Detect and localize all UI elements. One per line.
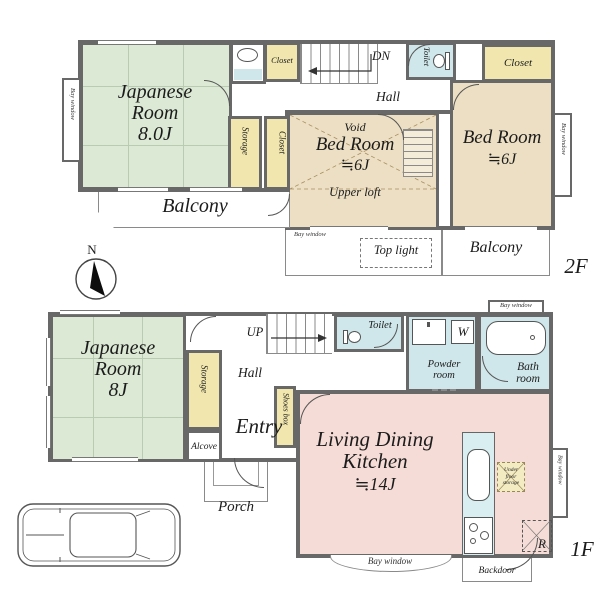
window [118, 187, 168, 192]
stairs-up-label: UP [240, 326, 270, 339]
bedroom-right-size: ≒6J [452, 152, 552, 169]
window [98, 40, 156, 45]
powder-room-1f: W Powder room [406, 314, 478, 392]
closet-top-right-2f: Closet [482, 44, 554, 82]
faucet-icon [427, 322, 430, 327]
toplight-terrace-2f: Bay window Top light [285, 230, 442, 276]
bath-room-1f: Bath room [478, 314, 552, 392]
bay-window-label: Bay window [559, 123, 566, 155]
burner-icon [470, 538, 476, 544]
under-floor-storage-label: Under floor storage [498, 467, 524, 487]
japanese-room-2f-label: Japanese Room 8.0J [95, 82, 215, 145]
hall-1f-label: Hall [228, 366, 272, 380]
floor1-label: 1F [562, 538, 600, 560]
bay-window-label: Bay window [288, 232, 332, 239]
entry-label: Entry [222, 415, 296, 437]
stairs-arrow-up-icon [267, 314, 333, 354]
backdoor-label: Backdoor [462, 567, 532, 577]
floor2-label: 2F [556, 255, 596, 277]
bay-window-right-1f: Bay window [551, 448, 568, 518]
closet-top-mid-2f: Closet [264, 42, 300, 82]
storage-2f: Storage [228, 116, 262, 190]
burner-icon [469, 523, 478, 532]
window [72, 457, 138, 462]
washbasin-floor [234, 69, 262, 80]
balcony-label: Balcony [448, 240, 544, 257]
bay-window-label: Bay window [490, 303, 542, 310]
drain-icon [530, 335, 535, 340]
bay-window-top-1f: Bay window [488, 300, 544, 314]
car-icon [14, 496, 186, 574]
window [46, 338, 51, 386]
bedroom-right-label: Bed Room [452, 128, 552, 148]
powder-door-dashed [432, 389, 456, 391]
storage-label: Storage [240, 127, 249, 155]
burner-icon [480, 531, 489, 540]
porch-label: Porch [204, 500, 268, 516]
japanese-room-1f-label: Japanese Room 8J [55, 338, 181, 401]
compass-icon [72, 255, 120, 303]
closet-label: Closet [485, 58, 551, 70]
balcony-label: Balcony [130, 196, 260, 217]
hall-2f-label: Hall [366, 90, 410, 104]
powder-room-label: Powder room [412, 359, 476, 381]
bedroom-mid-size: ≒6J [292, 158, 418, 175]
bedroom-mid-label: Bed Room [292, 135, 418, 155]
bathtub-icon [486, 321, 546, 355]
stairs-dn-label: DN [362, 49, 400, 63]
washbasin-nook-2f [230, 42, 266, 84]
toilet-tank-icon [445, 52, 450, 70]
stairs-1f [266, 314, 332, 354]
window [46, 396, 51, 448]
kitchen-sink-icon [467, 449, 490, 501]
toilet-bowl-icon [348, 331, 361, 343]
storage-label: Storage [199, 365, 208, 393]
storage-1f: Storage [186, 350, 222, 430]
floorplan-canvas: { "common": { "bay_window": "Bay window"… [0, 0, 600, 600]
bay-window-left-2f: Bay window [62, 78, 81, 162]
upper-loft-label: Upper loft [292, 186, 418, 199]
stove-icon [464, 517, 493, 554]
washbasin-sink-icon [237, 48, 258, 62]
alcove-label: Alcove [186, 443, 222, 453]
bath-room-label: Bath room [505, 361, 551, 385]
window [190, 187, 242, 192]
window [60, 310, 120, 315]
kitchen-counter [462, 432, 495, 556]
bay-window-label: Bay window [68, 88, 75, 120]
ldk-label: Living Dining Kitchen ≒14J [300, 428, 450, 494]
powder-sink-icon [412, 319, 446, 345]
closet-label: Closet [277, 131, 286, 154]
washer-label: W [453, 325, 473, 339]
under-floor-storage: Under floor storage [497, 462, 525, 492]
bay-window-right-2f: Bay window [553, 113, 572, 197]
closet-label: Closet [267, 56, 297, 65]
void-label: Void [300, 121, 410, 134]
bay-window-label: Bay window [556, 455, 562, 485]
top-light-label: Top light [362, 244, 430, 257]
bay-window-label: Bay window [340, 557, 440, 566]
toilet-bowl-icon [433, 54, 445, 68]
